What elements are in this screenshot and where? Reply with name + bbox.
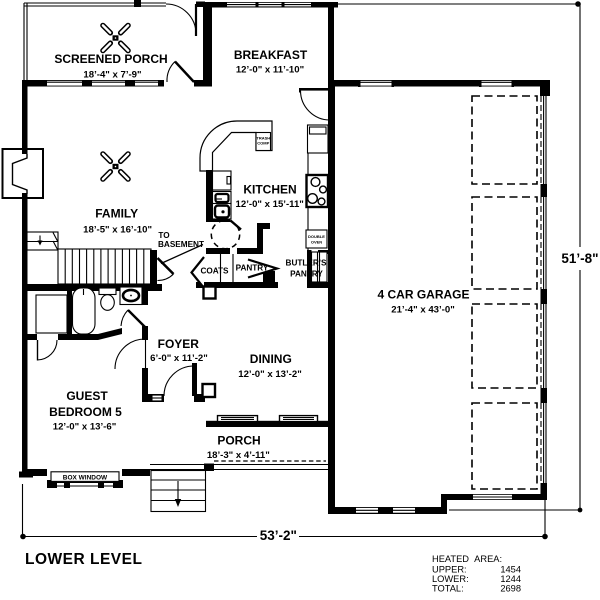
svg-text:SCREENED PORCH: SCREENED PORCH xyxy=(54,52,167,66)
svg-text:12’-0" x 13’-2": 12’-0" x 13’-2" xyxy=(238,369,302,380)
svg-text:TOTAL:: TOTAL: xyxy=(432,584,464,594)
svg-text:BREAKFAST: BREAKFAST xyxy=(234,48,308,62)
svg-text:BEDROOM 5: BEDROOM 5 xyxy=(49,405,122,419)
svg-text:KITCHEN: KITCHEN xyxy=(243,183,296,197)
svg-text:12’-0" x 11’-10": 12’-0" x 11’-10" xyxy=(236,65,304,76)
svg-text:TO: TO xyxy=(158,231,170,240)
svg-text:FAMILY: FAMILY xyxy=(95,207,138,221)
svg-text:FOYER: FOYER xyxy=(158,337,200,351)
svg-text:GUEST: GUEST xyxy=(66,389,108,403)
svg-text:1454: 1454 xyxy=(500,565,521,575)
svg-text:4 CAR GARAGE: 4 CAR GARAGE xyxy=(377,288,469,302)
svg-text:2698: 2698 xyxy=(500,584,521,594)
svg-text:COATS: COATS xyxy=(200,267,229,276)
svg-text:UPPER:: UPPER: xyxy=(432,565,467,575)
svg-text:COMP: COMP xyxy=(257,141,269,146)
svg-text:BOX WINDOW: BOX WINDOW xyxy=(63,475,108,482)
svg-text:18’-4" x 7’-9": 18’-4" x 7’-9" xyxy=(83,69,141,80)
svg-text:HEATED AREA:: HEATED AREA: xyxy=(432,554,502,564)
svg-text:6’-0" x 11’-2": 6’-0" x 11’-2" xyxy=(150,353,208,364)
svg-text:1244: 1244 xyxy=(500,574,521,584)
svg-text:LOWER:: LOWER: xyxy=(432,574,469,584)
svg-text:PANTRY: PANTRY xyxy=(236,264,269,273)
svg-text:PANTRY: PANTRY xyxy=(290,270,323,279)
svg-text:18’-3" x 4’-11": 18’-3" x 4’-11" xyxy=(207,450,270,461)
svg-text:PORCH: PORCH xyxy=(217,434,260,448)
svg-text:BASEMENT: BASEMENT xyxy=(158,240,204,249)
svg-text:12’-0" x 15’-11": 12’-0" x 15’-11" xyxy=(236,199,304,210)
svg-text:51’-8": 51’-8" xyxy=(561,251,598,266)
svg-text:21’-4" x 43’-0": 21’-4" x 43’-0" xyxy=(391,305,455,316)
svg-text:DOUBLE: DOUBLE xyxy=(308,234,325,239)
svg-text:BUTLER’S: BUTLER’S xyxy=(286,259,327,268)
svg-text:53’-2": 53’-2" xyxy=(260,528,297,543)
svg-text:LOWER LEVEL: LOWER LEVEL xyxy=(25,551,142,568)
svg-text:18’-5" x 16’-10": 18’-5" x 16’-10" xyxy=(83,225,152,236)
svg-text:12’-0" x 13’-6": 12’-0" x 13’-6" xyxy=(53,422,117,433)
svg-text:DINING: DINING xyxy=(250,352,292,366)
svg-text:OVEN: OVEN xyxy=(311,240,322,245)
